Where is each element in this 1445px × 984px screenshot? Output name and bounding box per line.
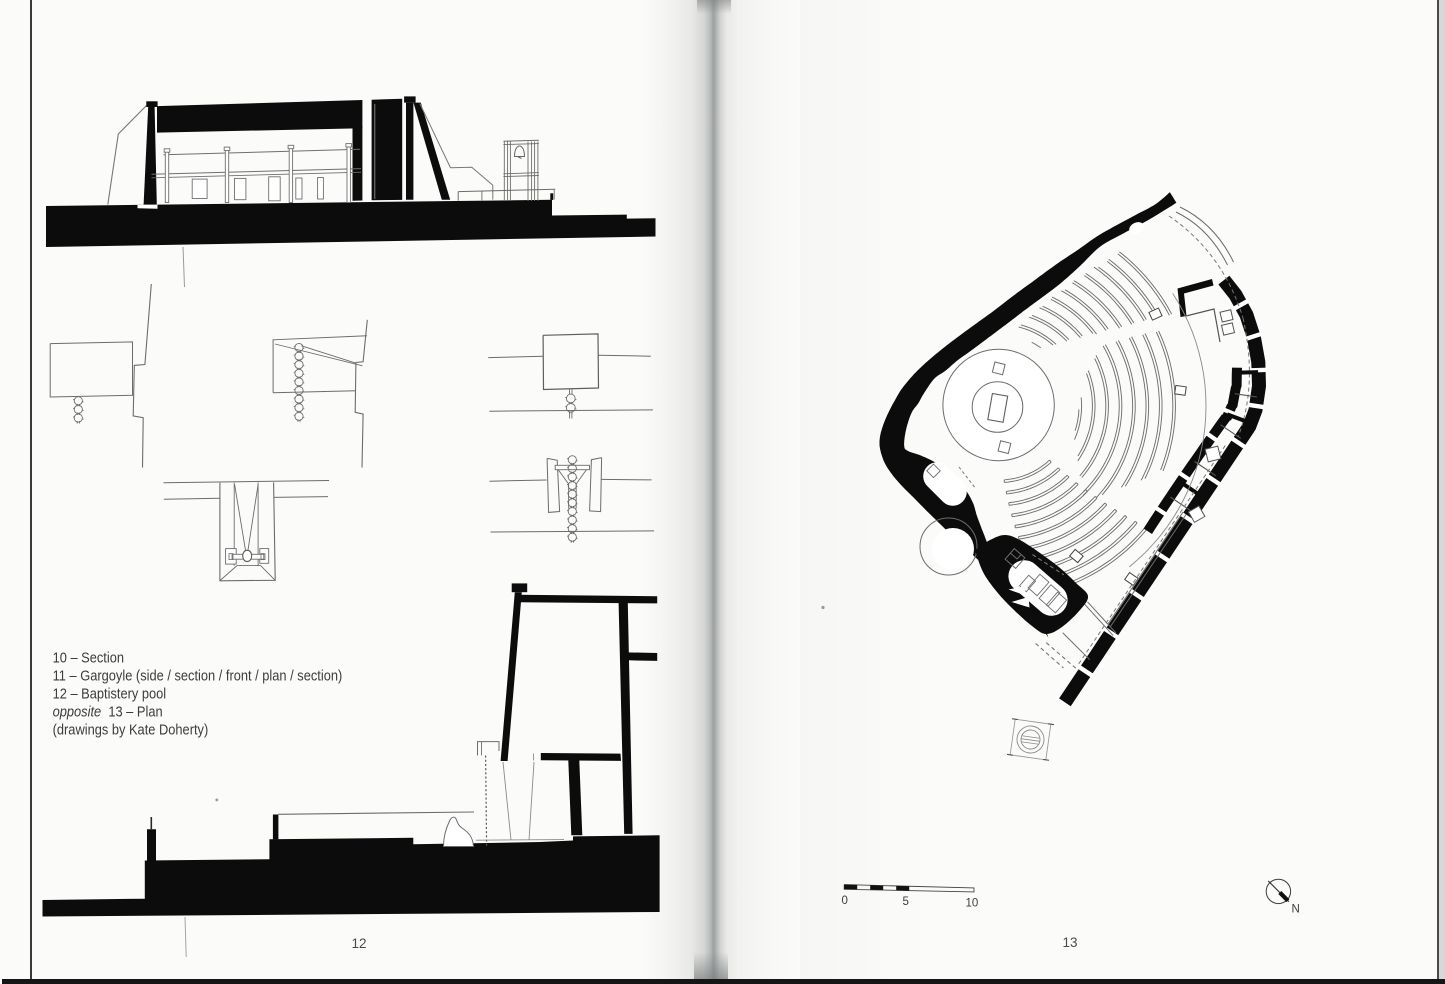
svg-text:10 – Section: 10 – Section [53,650,124,666]
svg-text:10: 10 [966,897,979,909]
svg-text:(drawings by Kate Doherty): (drawings by Kate Doherty) [53,722,209,738]
svg-text:opposite 13 – Plan: opposite 13 – Plan [53,704,163,720]
svg-text:N: N [1292,904,1300,916]
svg-text:12: 12 [352,936,367,951]
svg-text:12 – Baptistery pool: 12 – Baptistery pool [53,686,167,702]
svg-text:13: 13 [1063,935,1078,950]
svg-text:5: 5 [903,896,909,908]
svg-text:0: 0 [842,895,848,907]
svg-text:11 – Gargoyle (side / section: 11 – Gargoyle (side / section / front / … [53,668,343,684]
